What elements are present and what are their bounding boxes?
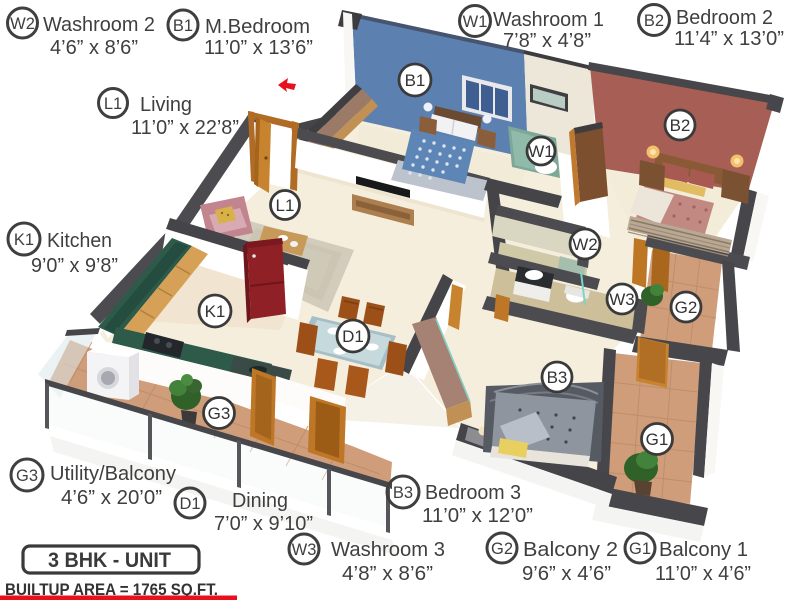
svg-text:Balcony 1: Balcony 1 bbox=[659, 538, 748, 561]
svg-text:G1: G1 bbox=[629, 540, 651, 558]
svg-text:4’6” x 8’6”: 4’6” x 8’6” bbox=[50, 36, 138, 59]
svg-text:Dining: Dining bbox=[232, 489, 288, 512]
svg-text:W3: W3 bbox=[609, 290, 635, 309]
svg-text:Washroom 1: Washroom 1 bbox=[493, 8, 604, 31]
svg-text:G2: G2 bbox=[491, 540, 513, 558]
svg-text:11’0” x 13’6”: 11’0” x 13’6” bbox=[204, 36, 313, 59]
svg-text:M.Bedroom: M.Bedroom bbox=[205, 15, 310, 38]
svg-text:Utility/Balcony: Utility/Balcony bbox=[50, 462, 177, 485]
svg-text:Living: Living bbox=[140, 93, 192, 116]
svg-text:D1: D1 bbox=[342, 327, 364, 346]
svg-text:Washroom 2: Washroom 2 bbox=[43, 13, 155, 36]
svg-text:11’0” x 22’8”: 11’0” x 22’8” bbox=[131, 116, 239, 139]
svg-text:G2: G2 bbox=[675, 298, 698, 317]
svg-text:W1: W1 bbox=[528, 142, 554, 161]
svg-text:11’0” x 12’0”: 11’0” x 12’0” bbox=[422, 504, 533, 527]
svg-text:4’6” x 20’0”: 4’6” x 20’0” bbox=[61, 486, 162, 509]
svg-text:B1: B1 bbox=[405, 71, 426, 90]
svg-text:K1: K1 bbox=[14, 231, 34, 249]
svg-text:G3: G3 bbox=[16, 467, 38, 485]
svg-text:G1: G1 bbox=[646, 430, 669, 449]
svg-text:9’6” x 4’6”: 9’6” x 4’6” bbox=[522, 562, 611, 585]
svg-text:4’8” x 8’6”: 4’8” x 8’6” bbox=[342, 562, 433, 585]
svg-text:W3: W3 bbox=[292, 541, 317, 559]
svg-text:B2: B2 bbox=[644, 12, 664, 30]
svg-text:Kitchen: Kitchen bbox=[47, 229, 112, 252]
svg-text:Bedroom 2: Bedroom 2 bbox=[676, 6, 773, 29]
svg-text:3 BHK - UNIT: 3 BHK - UNIT bbox=[48, 549, 171, 572]
svg-text:D1: D1 bbox=[179, 495, 200, 513]
svg-text:L1: L1 bbox=[104, 95, 122, 113]
svg-text:11’0” x 4’6”: 11’0” x 4’6” bbox=[655, 562, 751, 585]
svg-text:B3: B3 bbox=[547, 368, 568, 387]
svg-text:7’8” x 4’8”: 7’8” x 4’8” bbox=[503, 29, 591, 52]
svg-text:L1: L1 bbox=[276, 196, 295, 215]
svg-text:7’0” x 9’10”: 7’0” x 9’10” bbox=[214, 512, 313, 535]
svg-text:Washroom 3: Washroom 3 bbox=[331, 538, 445, 561]
svg-text:W1: W1 bbox=[463, 13, 488, 31]
svg-text:W2: W2 bbox=[572, 235, 598, 254]
svg-text:Balcony 2: Balcony 2 bbox=[523, 538, 618, 561]
svg-text:B2: B2 bbox=[670, 116, 691, 135]
svg-text:9’0” x 9’8”: 9’0” x 9’8” bbox=[31, 254, 118, 277]
svg-text:Bedroom 3: Bedroom 3 bbox=[425, 481, 521, 504]
svg-text:B3: B3 bbox=[393, 484, 413, 502]
svg-text:B1: B1 bbox=[173, 17, 193, 35]
svg-text:G3: G3 bbox=[208, 404, 231, 423]
svg-text:W2: W2 bbox=[10, 15, 35, 33]
svg-text:K1: K1 bbox=[205, 302, 226, 321]
svg-text:11’4” x 13’0”: 11’4” x 13’0” bbox=[674, 27, 784, 50]
